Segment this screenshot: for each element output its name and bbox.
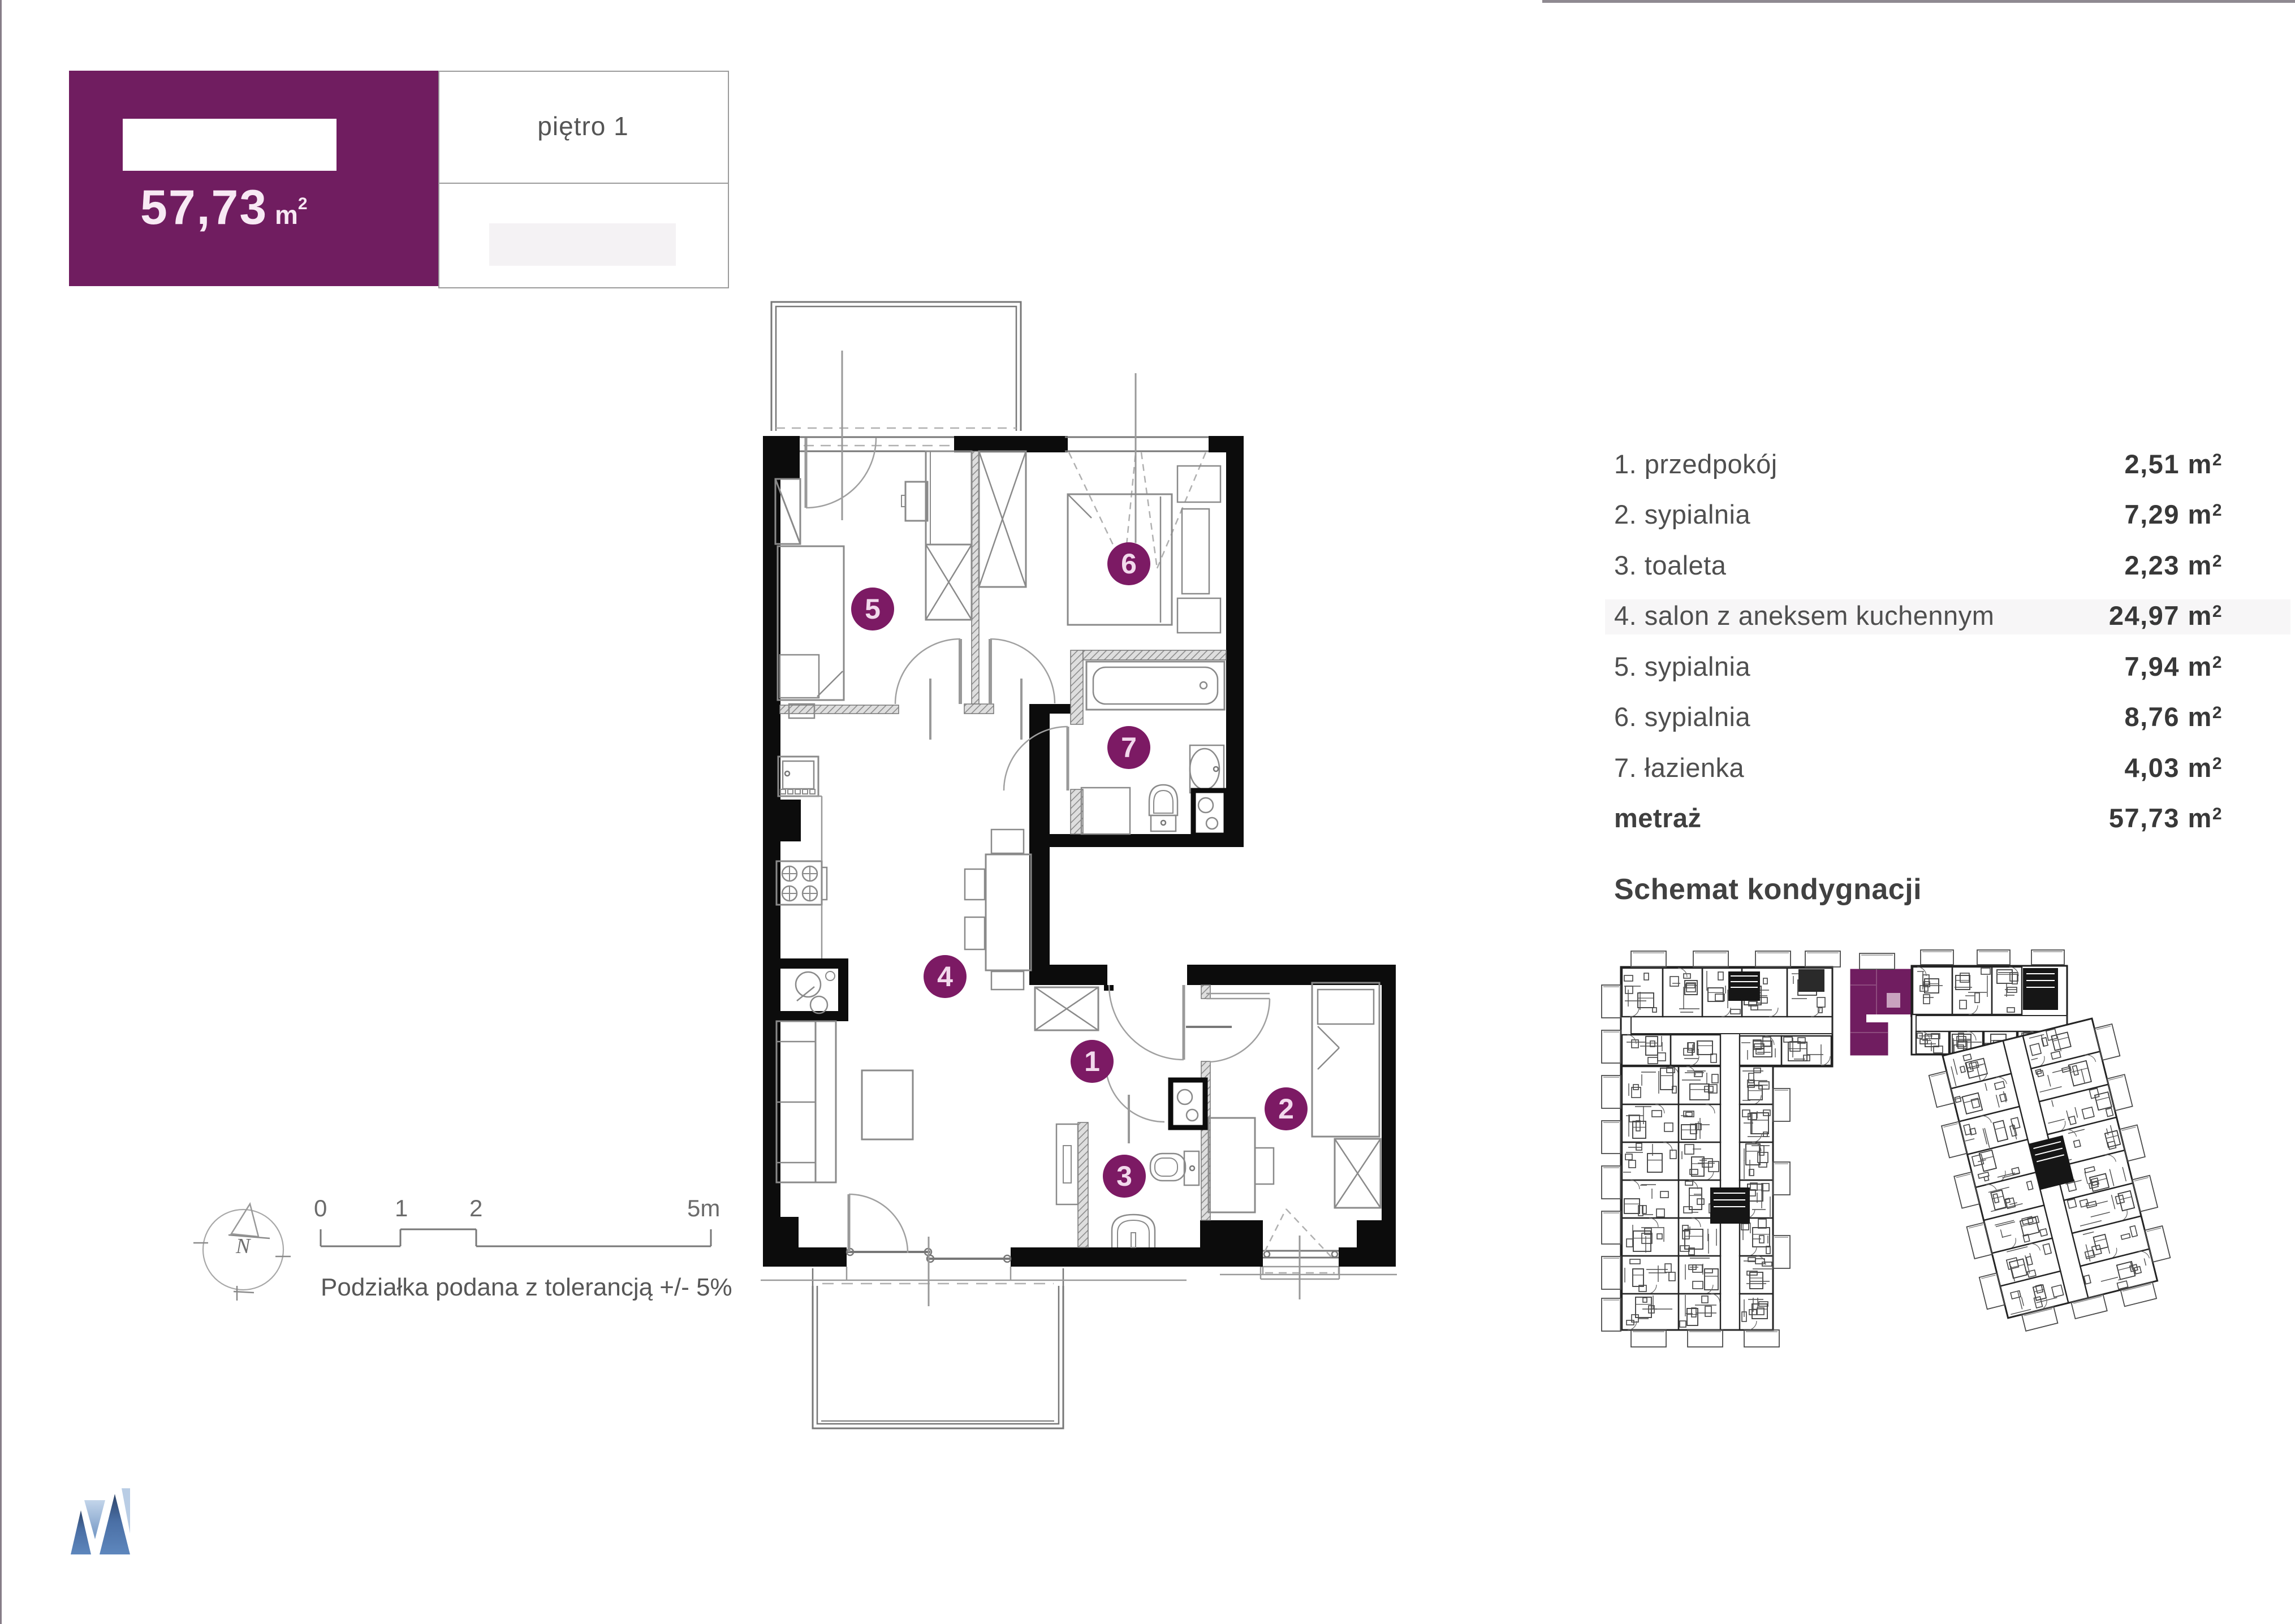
- svg-text:7: 7: [1121, 732, 1137, 763]
- svg-text:6: 6: [1121, 548, 1137, 580]
- svg-text:1: 1: [1084, 1046, 1100, 1077]
- svg-text:3: 3: [1116, 1160, 1132, 1192]
- svg-text:4: 4: [937, 961, 953, 992]
- svg-text:N: N: [235, 1234, 252, 1258]
- svg-text:2: 2: [1278, 1093, 1294, 1125]
- svg-text:5: 5: [865, 593, 881, 625]
